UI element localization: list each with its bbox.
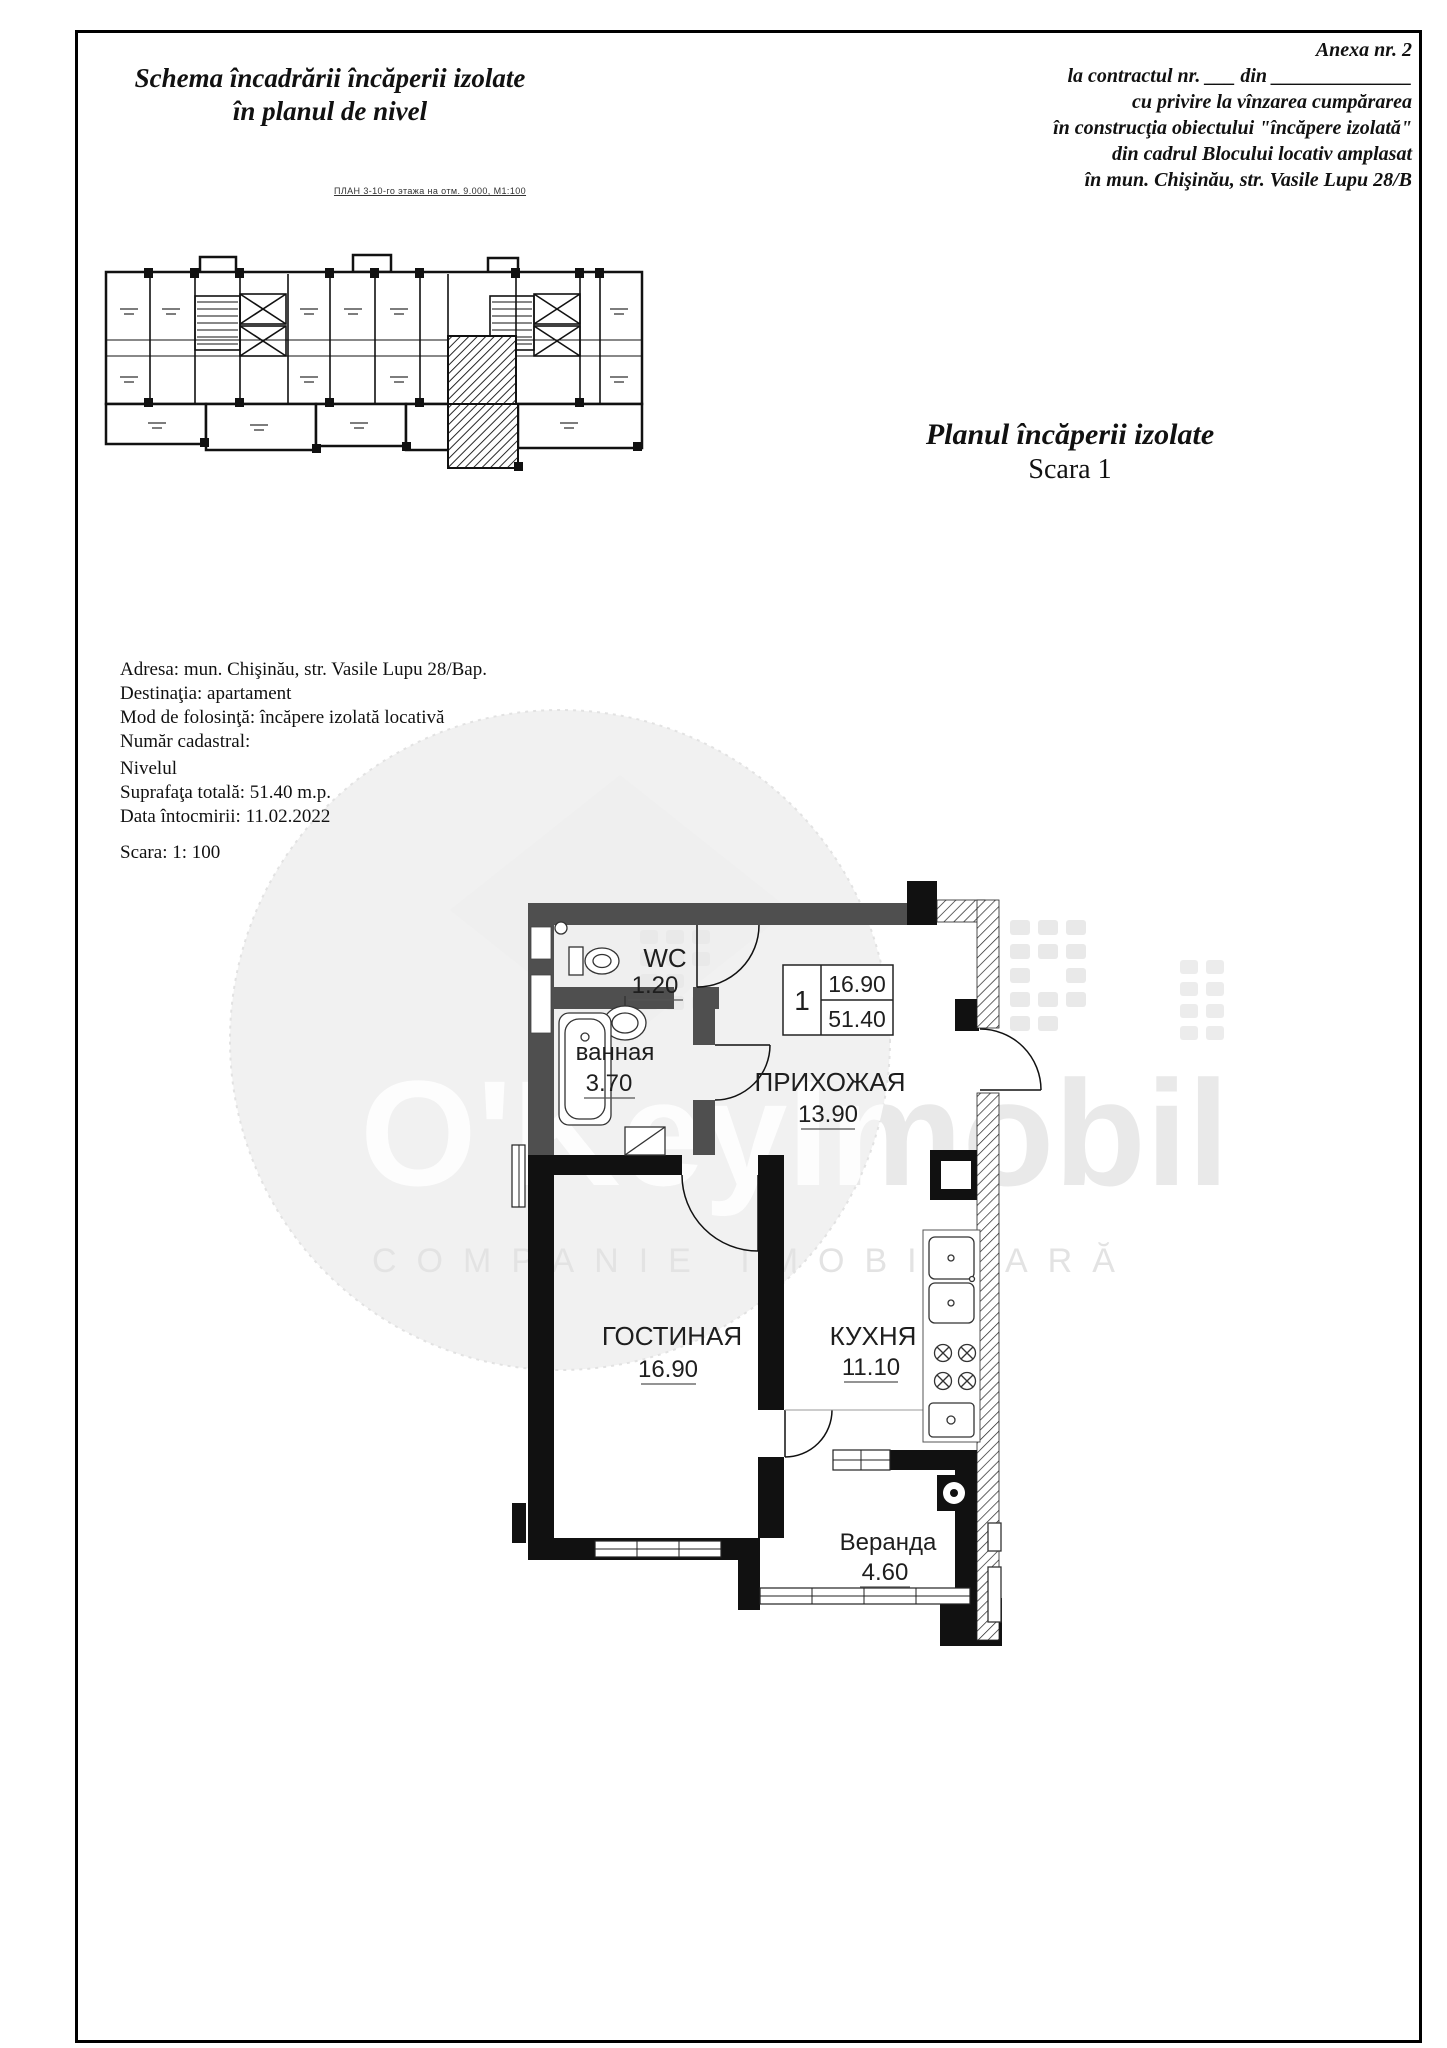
room-area-kitchen: 11.10: [842, 1354, 900, 1381]
room-label-living: ГОСТИНАЯ: [602, 1321, 742, 1351]
room-area-bath: 3.70: [586, 1070, 633, 1097]
level-plan-caption: ПЛАН 3-10-го этажа на отм. 9.000, М1:100: [250, 186, 610, 196]
room-area-wc: 1.20: [632, 972, 679, 999]
detail-nivel: Nivelul: [120, 757, 487, 781]
room-label-hall: ПРИХОЖАЯ: [755, 1067, 906, 1097]
annex-line: în construcţia obiectului "încăpere izol…: [740, 115, 1412, 141]
washing-machine-icon: [937, 1475, 971, 1511]
annex-line: în mun. Chişinău, str. Vasile Lupu 28/B: [740, 167, 1412, 193]
annex-note: Anexa nr. 2 la contractul nr. ___ din __…: [740, 37, 1412, 193]
detail-cadastral: Număr cadastral:: [120, 730, 487, 754]
level-plan: [100, 238, 648, 480]
annex-line: Anexa nr. 2: [740, 37, 1412, 63]
annex-line: cu privire la vînzarea cumpărarea: [740, 89, 1412, 115]
wall-niche: [531, 975, 551, 1033]
level-plan-title-line1: Schema încadrării încăperii izolate: [110, 62, 550, 95]
unit-plan-title-block: Planul încăperii izolate Scara 1: [880, 418, 1260, 486]
unit-plan-scale: Scara 1: [880, 454, 1260, 486]
shaft-icon: [941, 1161, 971, 1189]
bathtub-icon: [559, 1013, 611, 1125]
property-details: Adresa: mun. Chişinău, str. Vasile Lupu …: [120, 658, 487, 865]
duct-icon: [625, 1127, 665, 1155]
document-page: O'KeyImobil O'KeyImobil COMPANIE IMOBILI…: [0, 0, 1447, 2048]
annex-line: la contractul nr. ___ din ______________: [740, 63, 1412, 89]
annex-line: din cadrul Blocului locativ amplasat: [740, 141, 1412, 167]
unit-number: 1: [794, 985, 810, 1016]
room-area-hall: 13.90: [798, 1101, 858, 1128]
drain-pipe: [988, 1523, 1001, 1622]
detail-destinatia: Destinaţia: apartament: [120, 682, 487, 706]
detail-adresa: Adresa: mun. Chişinău, str. Vasile Lupu …: [120, 658, 487, 682]
area-table: 1 16.90 51.40: [783, 965, 893, 1035]
subject-unit-hatch: [448, 336, 518, 468]
room-label-wc: WC: [643, 943, 686, 973]
level-plan-title: Schema încadrării încăperii izolate în p…: [110, 62, 550, 128]
detail-data: Data întocmirii: 11.02.2022: [120, 805, 487, 829]
detail-suprafata: Suprafaţa totală: 51.40 m.p.: [120, 781, 487, 805]
level-plan-title-line2: în planul de nivel: [110, 95, 550, 128]
unit-plan: 1 16.90 51.40 WC 1.20 ванная 3.70 ПРИХОЖ…: [510, 875, 1055, 1660]
dish-sink-icon: [929, 1403, 974, 1437]
total-area-value: 51.40: [828, 1006, 886, 1032]
toilet-icon: [569, 947, 619, 975]
detail-folosinta: Mod de folosinţă: încăpere izolată locat…: [120, 706, 487, 730]
living-area-value: 16.90: [828, 971, 886, 997]
unit-plan-title: Planul încăperii izolate: [880, 418, 1260, 452]
room-label-kitchen: КУХНЯ: [830, 1321, 917, 1351]
vent-icon: [555, 922, 567, 934]
room-area-veranda: 4.60: [862, 1559, 909, 1586]
room-area-living: 16.90: [638, 1356, 698, 1383]
room-label-bath: ванная: [576, 1039, 655, 1066]
room-label-veranda: Веранда: [840, 1529, 937, 1556]
wall-niche: [531, 927, 551, 959]
detail-scara: Scara: 1: 100: [120, 841, 487, 865]
